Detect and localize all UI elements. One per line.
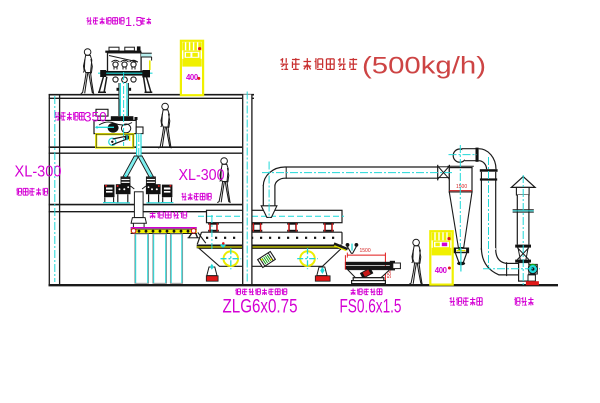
- svg-text:XL-300: XL-300: [179, 167, 225, 184]
- svg-text:1500: 1500: [360, 248, 371, 254]
- svg-text:ZLG6x0.75: ZLG6x0.75: [223, 297, 298, 318]
- svg-text:350: 350: [84, 110, 107, 125]
- svg-text:400: 400: [186, 73, 199, 82]
- svg-text:FS0.6x1.5: FS0.6x1.5: [340, 297, 402, 318]
- svg-text:(500kg/h): (500kg/h): [362, 53, 486, 80]
- svg-text:1.5: 1.5: [125, 15, 143, 29]
- svg-text:1500: 1500: [456, 184, 467, 190]
- svg-text:400: 400: [435, 266, 448, 275]
